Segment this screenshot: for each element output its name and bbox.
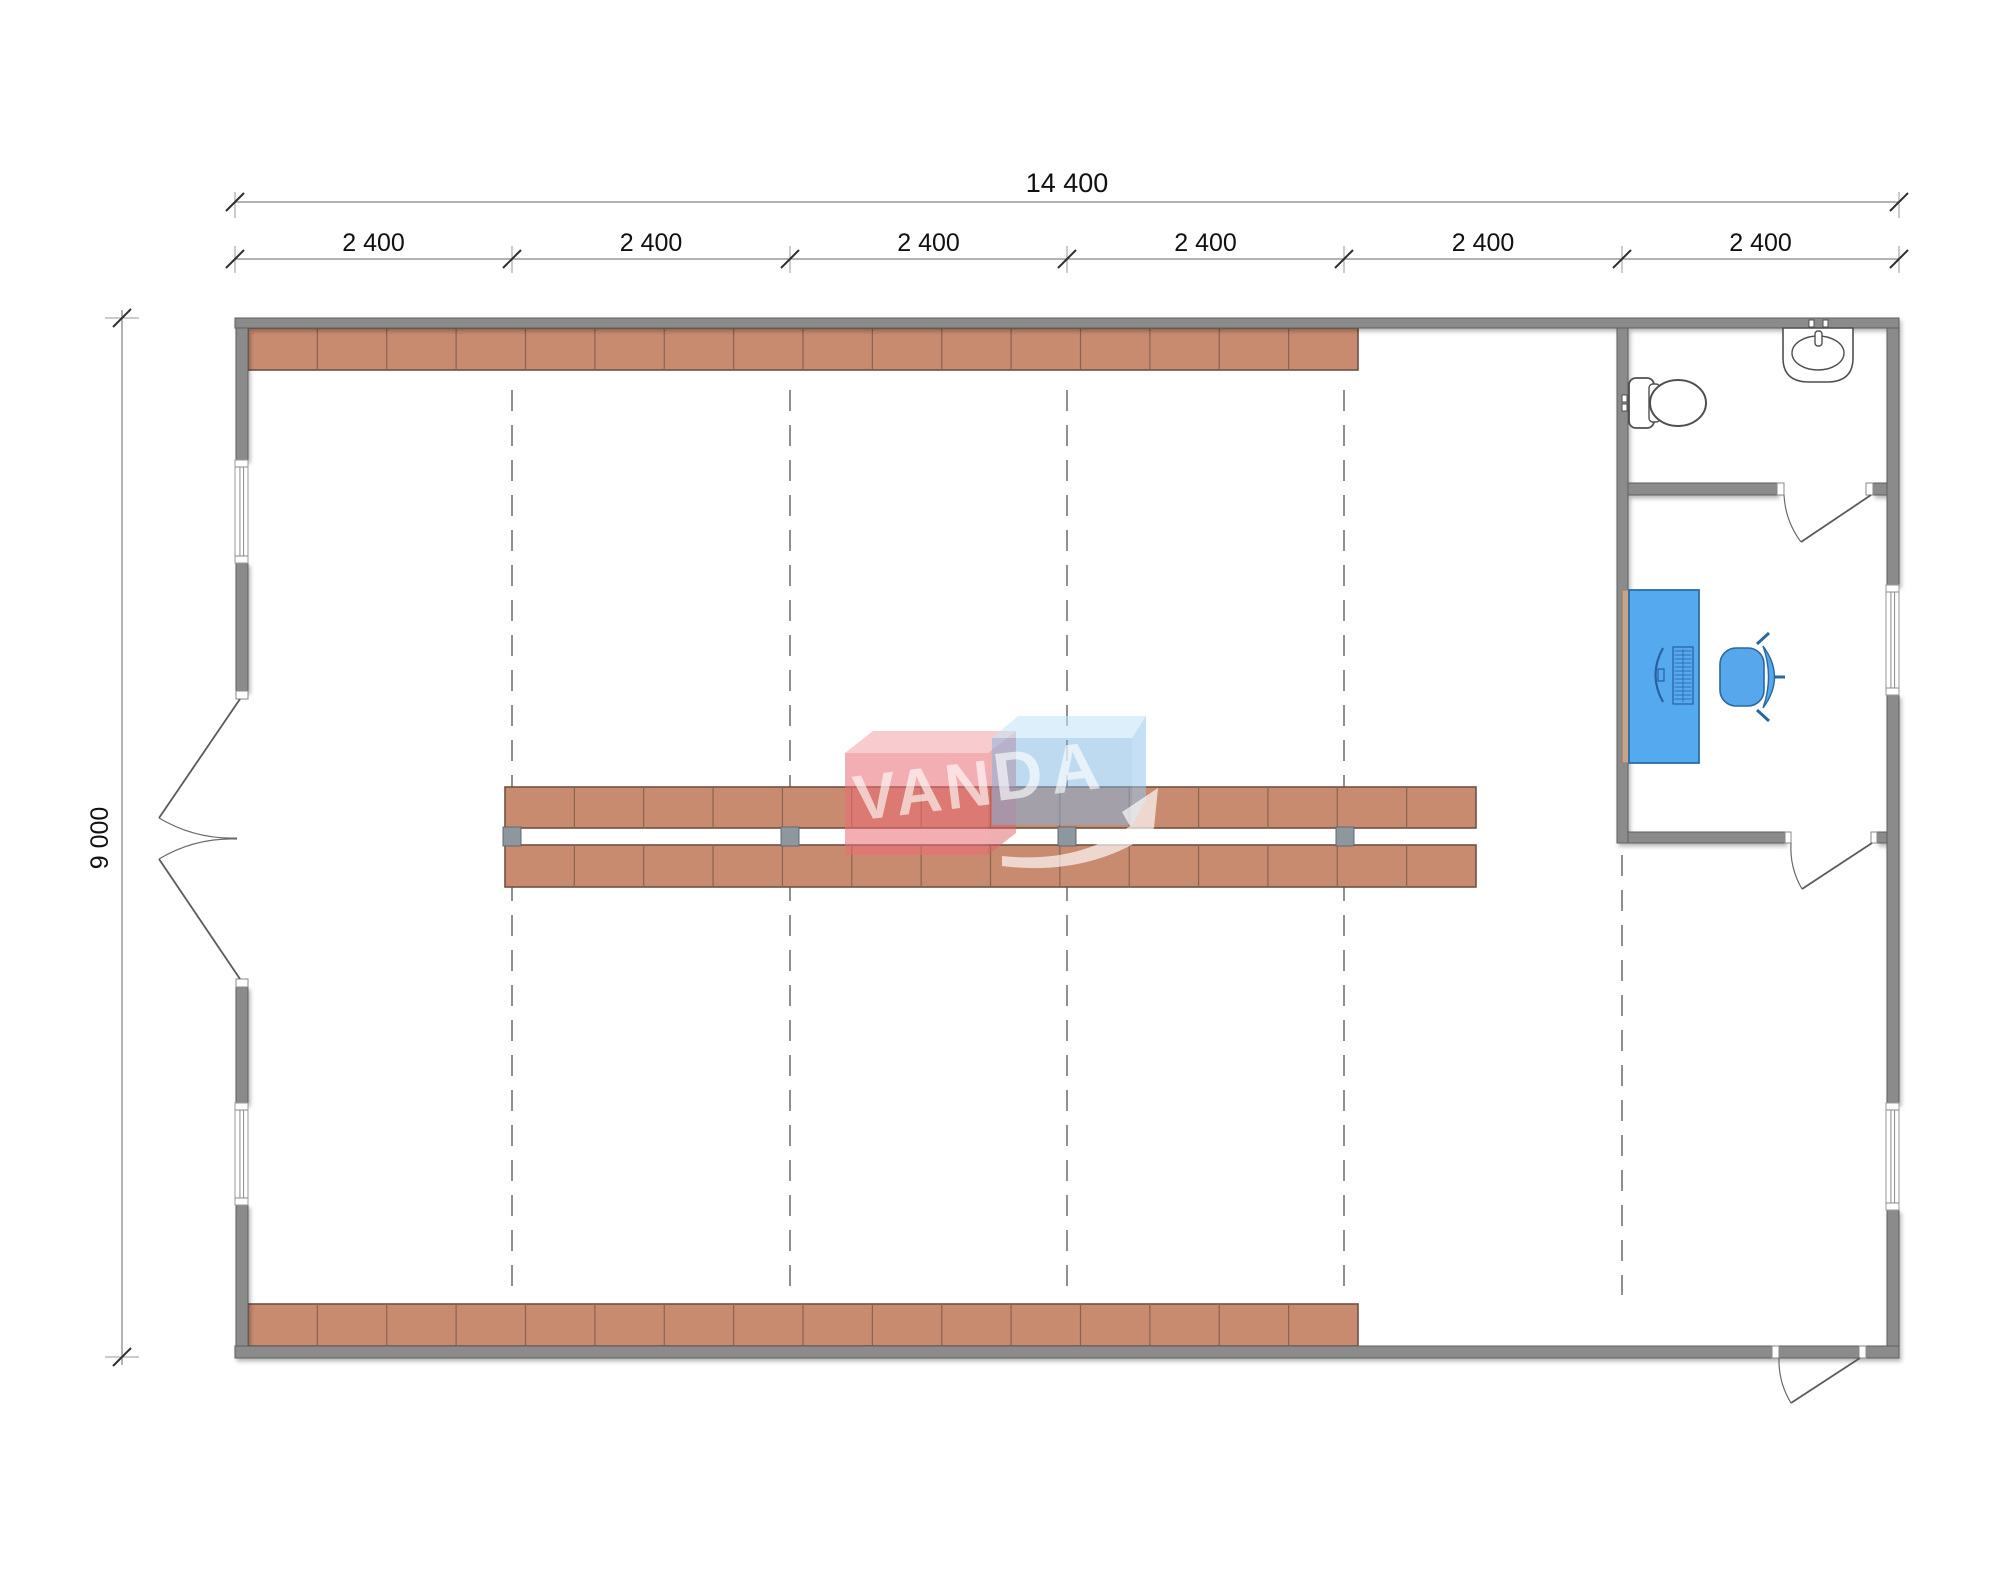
bay-dimension-label: 2 400 — [897, 229, 960, 257]
wall — [1887, 328, 1899, 585]
height-label: 9 000 — [86, 807, 114, 870]
shelf-row — [248, 1304, 1358, 1346]
bay-dimension-label: 2 400 — [342, 229, 405, 257]
door-swing-arc — [159, 818, 237, 838]
toilet — [1622, 378, 1706, 428]
door-swing-arc — [1779, 1358, 1791, 1403]
office-chair — [1720, 633, 1785, 721]
toilet-flush-button — [1622, 395, 1627, 402]
wall — [236, 563, 248, 691]
door-jamb — [1859, 1346, 1866, 1358]
floor-plan-drawing: 14 4002 4002 4002 4002 4002 4002 4009 00… — [0, 0, 2000, 1574]
door-swing-arc — [1791, 843, 1802, 889]
door-leaf — [159, 699, 240, 818]
window — [235, 1103, 248, 1205]
wall — [1877, 832, 1887, 843]
sink-tap-handle — [1809, 320, 1814, 327]
toilet-flush-button — [1622, 404, 1627, 411]
wall — [1628, 832, 1785, 843]
chair-seat — [1720, 648, 1764, 706]
sink-faucet — [1815, 331, 1822, 346]
wall — [1887, 695, 1899, 1103]
shelf-post — [1058, 827, 1076, 846]
window-opening — [1886, 1103, 1899, 1210]
door-jamb — [1777, 483, 1784, 495]
shelf-post — [503, 827, 521, 846]
door-swing-arc — [1784, 495, 1801, 542]
office-door — [1791, 843, 1872, 889]
shelf-post — [1336, 827, 1354, 846]
shelf-post — [781, 827, 799, 846]
total-width-label: 14 400 — [1026, 168, 1109, 198]
window — [1886, 1103, 1899, 1210]
window — [235, 460, 248, 563]
toilet-bowl — [1650, 380, 1706, 426]
wall — [1887, 1210, 1899, 1346]
door-jamb — [1772, 1346, 1779, 1358]
wall — [236, 328, 248, 460]
exit-door — [1779, 1358, 1860, 1403]
bay-dimension-label: 2 400 — [1174, 229, 1237, 257]
door-jamb — [236, 691, 248, 699]
entry-door-top-leaf — [159, 699, 240, 838]
door-leaf — [159, 859, 240, 979]
door-swing-arc — [159, 839, 237, 859]
watermark-text-da: DA — [989, 726, 1112, 815]
window-opening — [235, 460, 248, 563]
wall — [235, 1346, 1899, 1358]
bay-dimension-label: 2 400 — [1729, 229, 1792, 257]
window — [1886, 585, 1899, 695]
bathroom-door — [1784, 495, 1871, 542]
sink-tap-handle — [1823, 320, 1828, 327]
doors — [159, 495, 1872, 1403]
entry-door-bottom-leaf — [159, 839, 240, 979]
door-leaf — [1791, 1358, 1860, 1403]
door-leaf — [1802, 843, 1872, 889]
window-opening — [235, 1103, 248, 1205]
bay-dimension-label: 2 400 — [1452, 229, 1515, 257]
floor-plan-canvas: 14 4002 4002 4002 4002 4002 4002 4009 00… — [0, 0, 2000, 1574]
wall — [236, 987, 248, 1103]
chair-leg — [1757, 710, 1769, 721]
sink — [1783, 320, 1853, 382]
wall — [1873, 483, 1887, 495]
office-desk — [1622, 590, 1699, 763]
door-jamb — [236, 979, 248, 987]
wall — [236, 1205, 248, 1346]
chair-leg — [1757, 633, 1769, 644]
door-leaf — [1801, 495, 1871, 542]
shelf-row — [248, 328, 1358, 370]
wall — [1628, 483, 1777, 495]
window-opening — [1886, 585, 1899, 695]
bay-dimension-label: 2 400 — [620, 229, 683, 257]
door-jamb — [1871, 832, 1877, 843]
wall — [235, 318, 1899, 328]
door-jamb — [1785, 832, 1791, 843]
door-jamb — [1866, 483, 1873, 495]
desk-side-edge — [1622, 590, 1629, 763]
